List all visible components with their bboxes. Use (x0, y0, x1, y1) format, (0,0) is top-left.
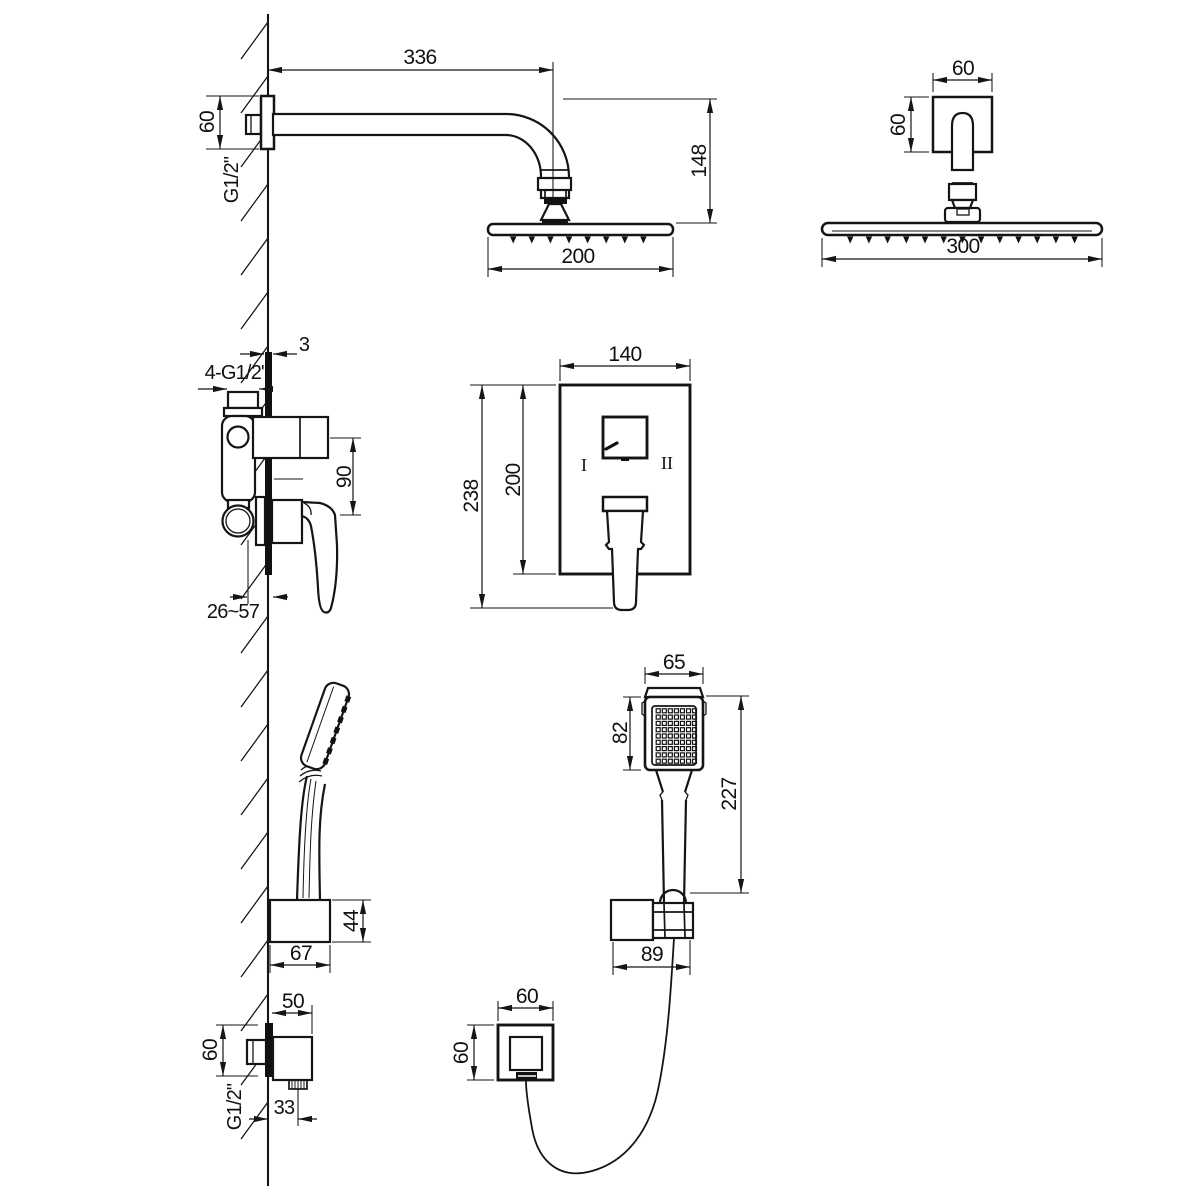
hand-shower-head-side (299, 680, 354, 772)
plate-handle-hub (603, 497, 647, 511)
head-cone-joint (541, 204, 569, 220)
dim-plate-height-total: 238 (460, 479, 483, 512)
mixer-lower-port (223, 506, 254, 537)
wall-section (241, 14, 268, 1186)
dim-head-width-side: 200 (561, 245, 594, 268)
dim-plate-width: 140 (608, 343, 641, 366)
rain-head-side (488, 224, 673, 235)
outlet-flange-plate (265, 1023, 273, 1077)
bracket-block (611, 900, 653, 940)
view-hand-shower-holder: 44 67 (270, 680, 371, 973)
outlet-body-side (273, 1037, 312, 1080)
mixer-cartridge-housing (253, 417, 328, 458)
dim-plate-height: 200 (502, 463, 525, 496)
dim-outlet-front-width: 60 (516, 985, 538, 1008)
outlet-inner-square (510, 1037, 542, 1070)
arm-nut (538, 178, 571, 190)
dim-outlet-depth: 50 (282, 990, 304, 1013)
dim-front-flange-height: 60 (887, 114, 910, 136)
hand-shower-handle (662, 800, 664, 903)
dim-outlet-front-height: 60 (450, 1042, 473, 1064)
dim-face-height: 82 (609, 722, 632, 744)
mixer-inlet-port (228, 427, 249, 448)
diverter-knob (603, 417, 647, 458)
dim-front-flange-width: 60 (952, 57, 974, 80)
dim-bracket-width: 89 (641, 943, 663, 966)
shower-arm (273, 114, 569, 198)
dim-hand-shower-width: 65 (663, 651, 685, 674)
hand-shower-top-cap (645, 688, 703, 697)
front-pipe (952, 113, 973, 170)
mixer-handle (302, 502, 337, 613)
outlet-wall-stub (247, 1040, 266, 1064)
technical-diagram-canvas: 336 60 G1/2" 148 200 60 60 (0, 0, 1200, 1200)
dim-head-width-front: 300 (946, 235, 979, 258)
view-rain-shower-front: 60 60 300 (822, 57, 1102, 267)
dim-flange-size: 60 (196, 111, 219, 133)
dim-head-drop: 148 (688, 144, 711, 177)
plate-handle-lever (606, 511, 644, 610)
dim-plate-thickness: 3 (299, 334, 310, 356)
label-mode-2: II (661, 453, 673, 473)
dim-outlet-offset: 33 (274, 1097, 295, 1119)
mixer-escutcheon (272, 500, 302, 543)
dim-holder-width: 67 (290, 942, 312, 965)
view-mixer-side: 3 4-G1/2" 90 26~57 (198, 334, 361, 623)
label-outlet-thread: G1/2" (224, 1083, 246, 1130)
view-hand-shower-front: 65 82 227 89 (526, 651, 749, 1173)
view-rain-shower-side: 336 60 G1/2" 148 200 (196, 46, 717, 277)
label-arm-thread: G1/2" (221, 156, 243, 203)
hand-shower-wall-holder (270, 900, 330, 942)
arm-wall-stub (246, 115, 261, 134)
mixer-top-port (228, 392, 258, 408)
bracket-clamp (653, 903, 693, 938)
dim-arm-length: 336 (403, 46, 436, 69)
rain-head-front (822, 223, 1102, 235)
label-mixer-connections: 4-G1/2" (205, 362, 268, 384)
dim-hand-shower-length: 227 (718, 777, 741, 810)
label-mode-1: I (581, 455, 587, 475)
dim-port-spacing: 90 (333, 466, 356, 488)
shower-system-installation-drawing: 336 60 G1/2" 148 200 60 60 (0, 0, 1200, 1200)
view-outlet-side: 50 60 G1/2" 33 (199, 990, 317, 1130)
dim-holder-height: 44 (340, 909, 363, 932)
rain-head-nozzles (510, 237, 647, 244)
view-trim-plate: I II 140 238 200 (460, 343, 690, 610)
view-outlet-front: 60 60 (450, 985, 553, 1080)
dim-install-depth-range: 26~57 (207, 601, 260, 623)
dim-outlet-flange-height: 60 (199, 1039, 222, 1061)
wall-hatch-pattern (241, 22, 268, 1139)
front-nut (949, 184, 976, 200)
